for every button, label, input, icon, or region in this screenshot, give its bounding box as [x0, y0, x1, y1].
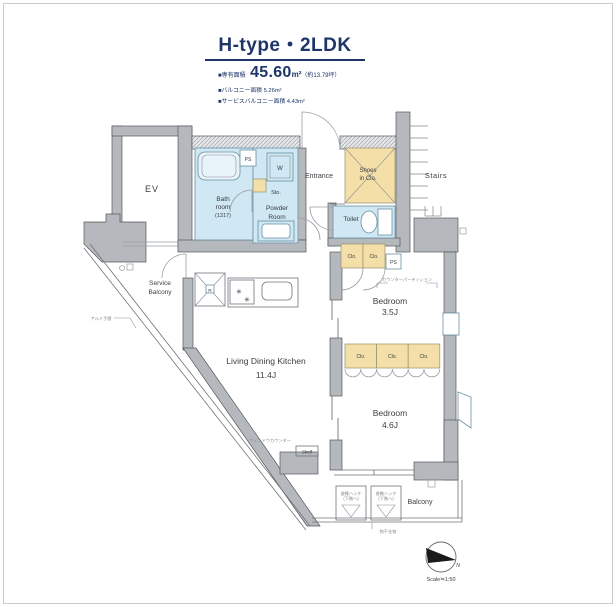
bedroom-a-size-label: 3.5J	[382, 307, 398, 317]
exterior-detail	[460, 228, 466, 234]
floor-plan-drawing: ✳ ✳	[0, 0, 616, 607]
ldk-label: Living Dining Kitchen	[226, 356, 306, 366]
counter-annotation-leader	[377, 283, 437, 288]
bifold-door-scallops	[345, 369, 440, 377]
closet-label: Clo.	[348, 254, 357, 260]
shoes-closet-label: Shoes	[359, 168, 376, 174]
fridge-label: R	[208, 288, 212, 294]
closet-label: Clo.	[357, 354, 366, 360]
window-counter-annotation: ウィンドウカウンター	[249, 437, 291, 444]
ev-label: EV	[145, 184, 159, 194]
stairs-label: Stairs	[425, 171, 447, 180]
balcony-railing	[312, 480, 462, 529]
bedroom-b-size-label: 4.6J	[382, 420, 398, 430]
hatch-annotation: (下階へ)	[378, 495, 394, 502]
service-balcony-label: Service	[149, 280, 171, 287]
closet-label: Clo.	[370, 254, 379, 260]
entrance-label: Entrance	[305, 173, 333, 180]
shoes-closet-label: in Clo.	[359, 176, 376, 182]
vanity-sink	[258, 221, 294, 241]
bedroom-a-label: Bedroom	[373, 296, 408, 306]
powder-room-label: Powder	[266, 205, 289, 212]
bath-label: Bath	[216, 196, 230, 203]
bath-size-label: (1317)	[215, 213, 231, 219]
toilet-label: Toilet	[343, 216, 358, 223]
service-balcony-railing	[84, 244, 310, 530]
burner-icon: ✳	[236, 288, 242, 296]
bedroom-b-label: Bedroom	[373, 408, 408, 418]
bathtub	[198, 152, 240, 180]
handrail-annotation-leader	[114, 318, 136, 328]
bath-label: room	[216, 204, 231, 211]
service-balcony-label: Balcony	[148, 289, 172, 296]
laundry-fitting-annotation: 物干金物	[380, 528, 397, 535]
hatch-annotation: (下階へ)	[343, 495, 359, 502]
balcony-label: Balcony	[408, 499, 433, 506]
ps-label: PS	[390, 260, 397, 266]
kitchen-sink	[262, 282, 292, 300]
closet-label: Clo.	[388, 354, 397, 360]
counter-partition-annotation: カウンターパーティション	[382, 276, 432, 283]
closet-label: Clo.	[420, 354, 429, 360]
scale-label: Scale≒1:50	[426, 577, 455, 583]
north-label: N	[456, 563, 460, 569]
kitchen-counter: ✳ ✳	[228, 278, 298, 307]
storage-label: Sto.	[271, 190, 281, 196]
burner-icon: ✳	[244, 296, 250, 304]
floor-plan-page: H-type・2LDK ■専有面積 45.60m²（約13.79坪） ■バルコニ…	[0, 0, 616, 607]
storage-box	[253, 179, 266, 192]
handrail-annotation: アルミ手摺	[91, 315, 112, 322]
shelf-label: Shelf	[302, 450, 313, 455]
powder-room-label: Room	[268, 214, 285, 221]
north-arrow-icon	[426, 542, 456, 572]
washer-label: W	[277, 166, 283, 172]
ldk-size-label: 11.4J	[256, 370, 276, 380]
ps-label: PS	[245, 157, 252, 163]
